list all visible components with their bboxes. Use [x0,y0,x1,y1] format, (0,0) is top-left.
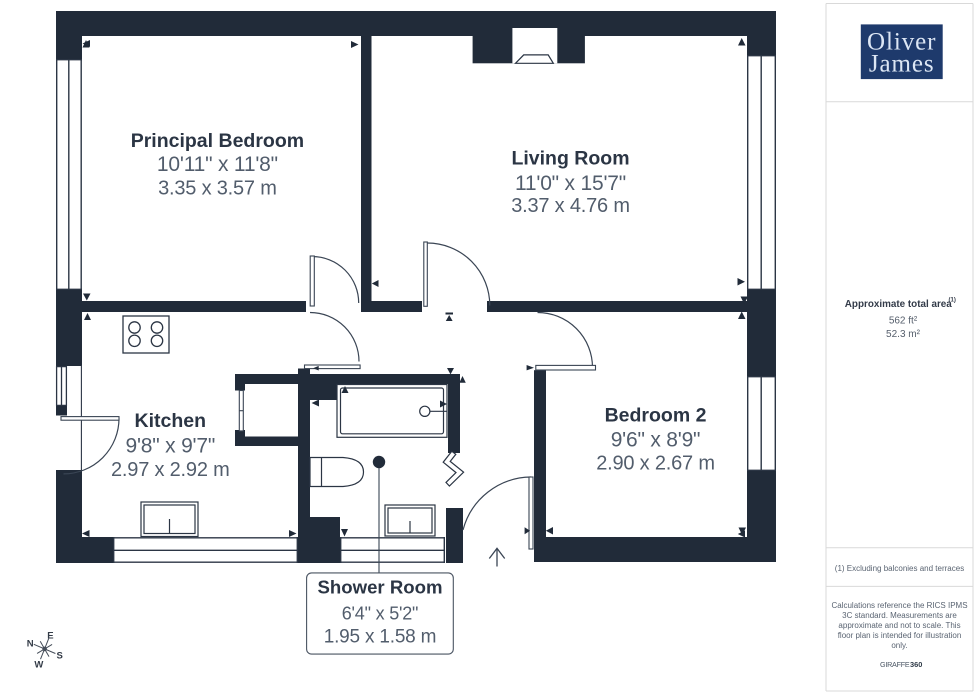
svg-text:2.97 x 2.92 m: 2.97 x 2.92 m [111,459,230,481]
svg-text:Kitchen: Kitchen [135,410,207,432]
svg-text:9'6" x 8'9": 9'6" x 8'9" [611,429,701,452]
svg-text:562 ft²: 562 ft² [889,316,918,327]
svg-text:W: W [34,660,43,671]
svg-text:9'8" x 9'7": 9'8" x 9'7" [125,435,215,458]
svg-text:S: S [57,651,63,662]
svg-text:1.95 x 1.58 m: 1.95 x 1.58 m [324,627,437,648]
svg-text:(1) Excluding balconies and te: (1) Excluding balconies and terraces [835,564,964,573]
svg-text:E: E [47,630,53,641]
svg-text:3.35 x 3.57 m: 3.35 x 3.57 m [158,178,277,200]
svg-text:(1): (1) [949,298,956,304]
svg-text:floor plan is intended for ill: floor plan is intended for illustration [838,631,962,640]
svg-text:3C standard. Measurements are: 3C standard. Measurements are [842,611,957,620]
svg-text:Living Room: Living Room [511,147,629,169]
svg-text:only.: only. [891,641,907,650]
svg-text:11'0" x 15'7": 11'0" x 15'7" [515,172,626,195]
svg-text:52.3 m²: 52.3 m² [886,329,921,340]
svg-text:10'11" x 11'8": 10'11" x 11'8" [157,153,278,176]
svg-text:N: N [27,639,34,650]
svg-text:360: 360 [910,660,922,669]
svg-text:2.90 x 2.67 m: 2.90 x 2.67 m [596,453,715,475]
svg-text:Shower Room: Shower Room [318,577,443,598]
svg-text:Principal Bedroom: Principal Bedroom [131,130,304,152]
svg-text:Bedroom 2: Bedroom 2 [605,405,707,427]
svg-text:Approximate total area: Approximate total area [845,299,953,310]
svg-text:Calculations reference the RIC: Calculations reference the RICS IPMS [831,601,967,610]
svg-text:GIRAFFE: GIRAFFE [880,660,910,669]
svg-text:3.37 x 4.76 m: 3.37 x 4.76 m [511,195,630,217]
svg-text:James: James [869,51,935,78]
svg-text:approximate and not to scale.: approximate and not to scale. This [838,621,960,630]
svg-text:6'4" x 5'2": 6'4" x 5'2" [342,603,419,623]
